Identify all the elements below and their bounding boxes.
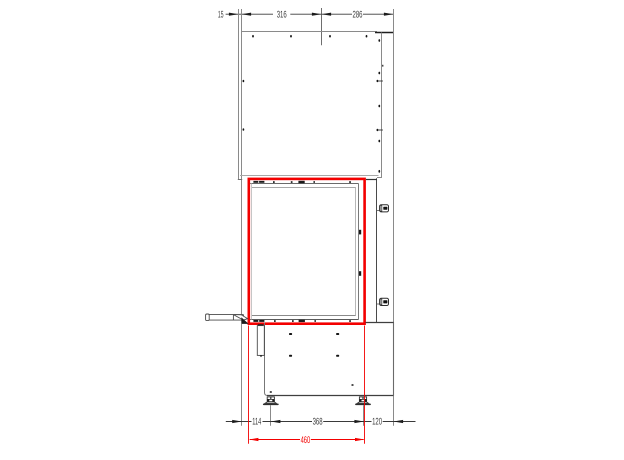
svg-text:120: 120 (372, 417, 382, 428)
svg-text:15: 15 (218, 9, 224, 20)
svg-text:114: 114 (252, 417, 261, 428)
svg-text:286: 286 (353, 9, 363, 20)
svg-text:368: 368 (313, 417, 323, 428)
svg-text:316: 316 (277, 9, 287, 20)
svg-text:460: 460 (301, 435, 311, 446)
